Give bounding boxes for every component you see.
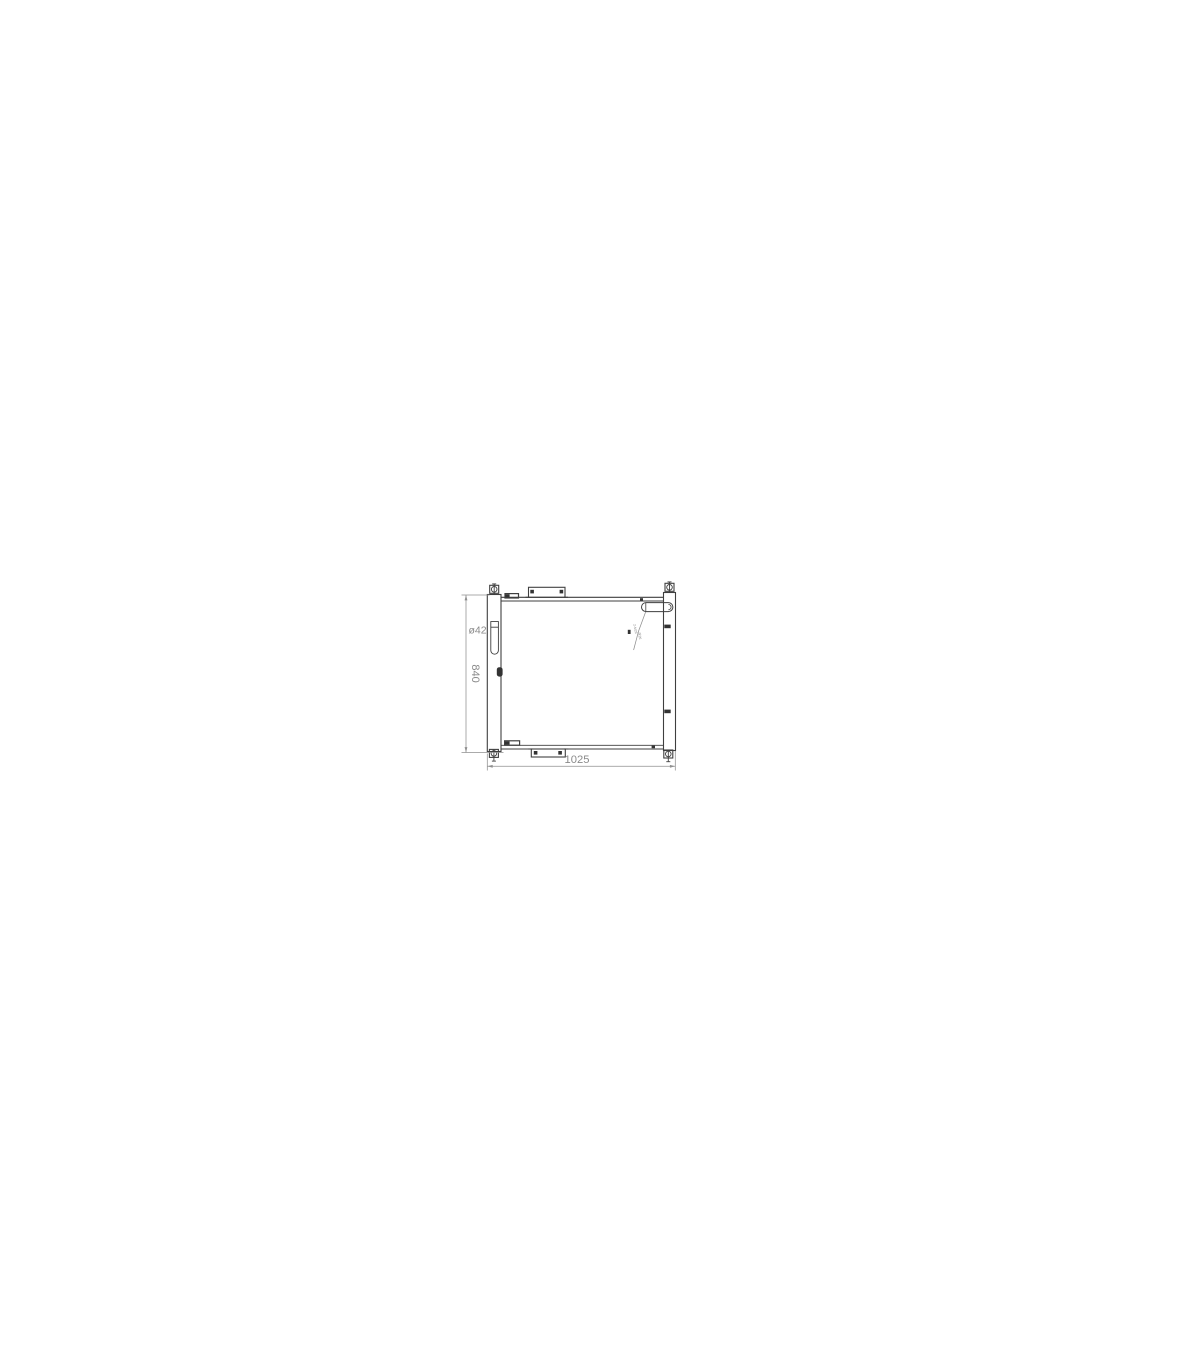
width-arrow-right — [670, 765, 675, 768]
left-tank-plug — [497, 667, 503, 676]
top-edge-weld-dot — [640, 598, 643, 600]
top-mounting-bracket — [526, 587, 569, 597]
left-port-slot — [491, 622, 499, 655]
bottom-bracket-bolt-left — [534, 751, 538, 755]
technical-drawing: 2-M26 深26 840 ø42 1025 — [450, 570, 710, 785]
top-bracket-outline — [529, 587, 566, 597]
height-arrow-top — [465, 595, 468, 600]
width-dimension: 1025 — [487, 751, 675, 771]
height-dim-text: 840 — [469, 664, 481, 682]
height-arrow-bottom — [465, 747, 468, 752]
inlet-port-slot — [642, 603, 673, 612]
bottom-bracket-bolt-right — [558, 751, 562, 755]
bottom-edge-weld-dot — [652, 746, 655, 749]
right-tank-baffle-mark-lower — [664, 710, 670, 714]
bottom-edge-clip-fill — [505, 741, 510, 744]
corner-bolt-top-right — [665, 582, 674, 593]
corner-bolt-top-left — [490, 584, 499, 595]
page: 2-M26 深26 840 ø42 1025 — [0, 0, 1200, 1372]
inlet-annotation-text-2: 深26 — [637, 632, 643, 640]
width-arrow-left — [487, 765, 492, 768]
top-edge-clip-fill — [505, 594, 509, 597]
corner-bolt-bottom-right — [664, 750, 673, 762]
top-bracket-bolt-right — [560, 590, 564, 594]
inlet-annotation-mark — [628, 630, 631, 634]
edge-clips — [505, 594, 520, 746]
core-section — [501, 597, 664, 749]
left-tank — [487, 595, 502, 752]
right-tank-body — [664, 593, 676, 751]
right-tank-baffle-mark-upper — [664, 625, 670, 629]
right-tank — [664, 593, 676, 751]
width-dim-text: 1025 — [565, 754, 590, 766]
bottom-mounting-bracket — [528, 749, 568, 757]
top-bracket-bolt-left — [530, 590, 534, 594]
inlet-port-inner-arc — [668, 604, 671, 609]
port-diameter-text: ø42 — [468, 625, 486, 637]
